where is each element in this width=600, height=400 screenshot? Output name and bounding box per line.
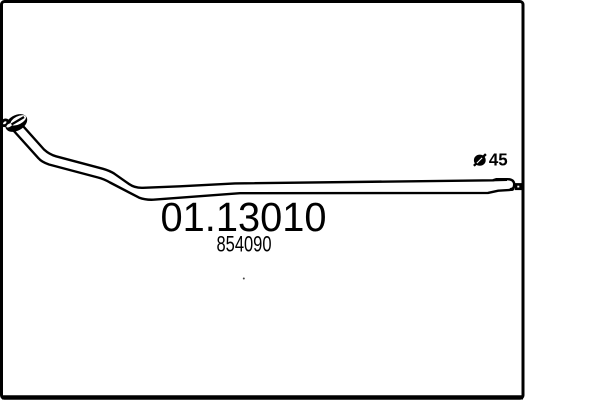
svg-text:45: 45 — [489, 150, 508, 170]
svg-text:854090: 854090 — [217, 231, 272, 256]
